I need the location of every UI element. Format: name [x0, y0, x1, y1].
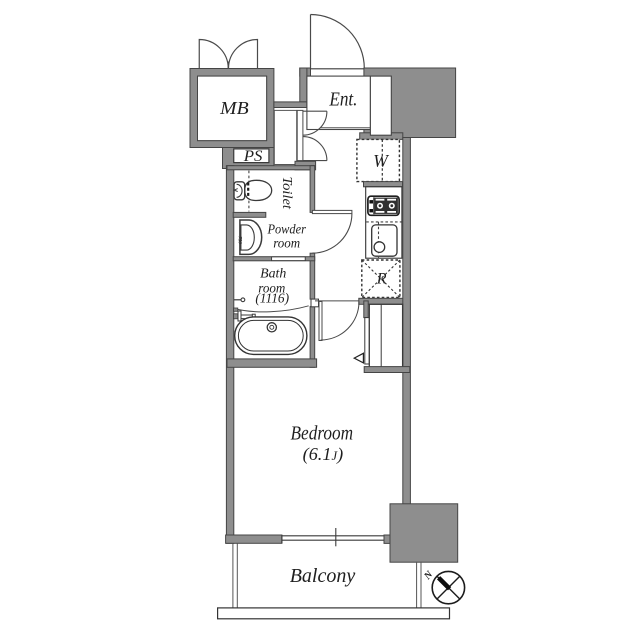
svg-text:Ent.: Ent.	[328, 88, 357, 110]
svg-text:Bedroom: Bedroom	[291, 422, 354, 444]
svg-text:(6.1J): (6.1J)	[303, 444, 344, 465]
svg-text:Powder: Powder	[267, 223, 307, 238]
svg-text:W: W	[373, 151, 389, 171]
svg-text:Balcony: Balcony	[290, 565, 356, 587]
svg-text:750: 750	[236, 236, 241, 244]
svg-text:Toilet: Toilet	[280, 176, 295, 210]
svg-text:MB: MB	[219, 98, 249, 118]
svg-text:room: room	[273, 237, 300, 252]
svg-text:(1116): (1116)	[255, 292, 289, 307]
svg-text:Bath: Bath	[260, 266, 286, 281]
svg-text:PS: PS	[243, 148, 263, 165]
svg-text:R: R	[376, 271, 387, 288]
